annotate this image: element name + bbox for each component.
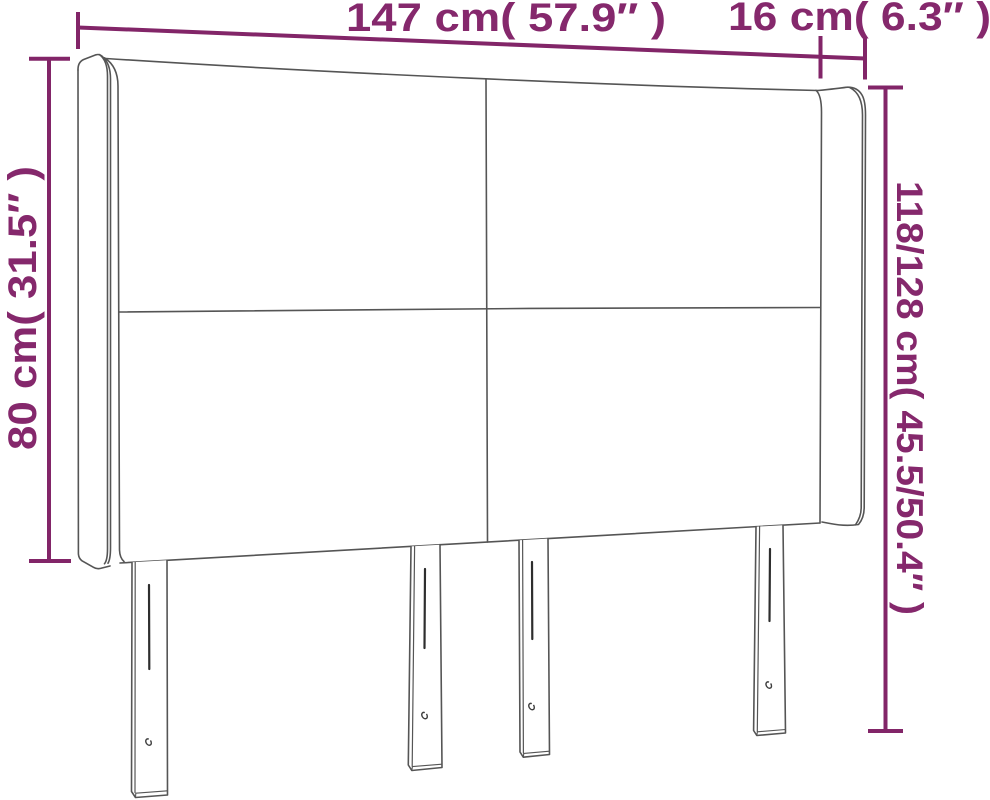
svg-text:16 cm( 6.3″ ): 16 cm( 6.3″ ) [728,0,990,39]
svg-text:118/128 cm( 45.5/50.4″ ): 118/128 cm( 45.5/50.4″ ) [889,181,930,615]
svg-text:80 cm( 31.5″ ): 80 cm( 31.5″ ) [1,166,45,450]
svg-text:147 cm( 57.9″ ): 147 cm( 57.9″ ) [346,0,666,40]
